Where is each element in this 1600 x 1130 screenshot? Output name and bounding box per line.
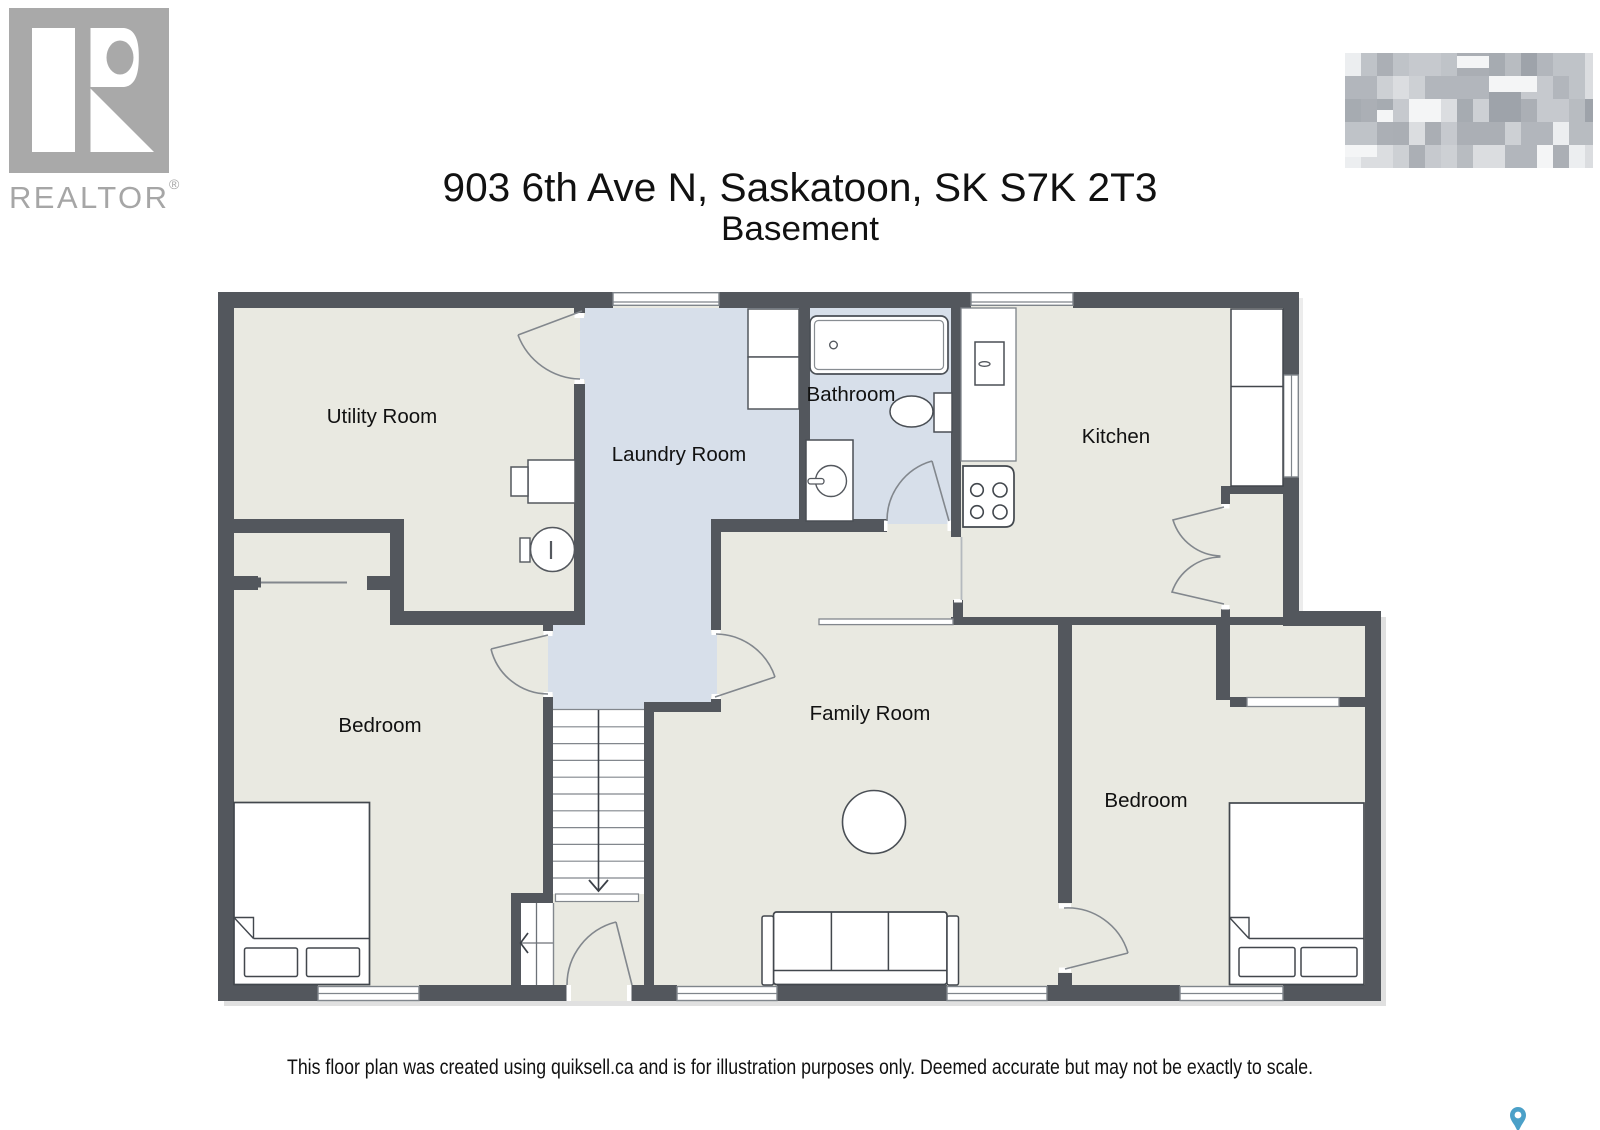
svg-text:Laundry Room: Laundry Room [612, 443, 746, 466]
svg-text:This floor plan was created us: This floor plan was created using quikse… [287, 1056, 1313, 1079]
svg-text:Family Room: Family Room [810, 702, 931, 725]
svg-text:Bathroom: Bathroom [807, 383, 896, 406]
svg-text:Bedroom: Bedroom [1104, 789, 1187, 812]
svg-text:Kitchen: Kitchen [1082, 425, 1150, 448]
svg-text:®: ® [169, 176, 180, 192]
svg-text:Bedroom: Bedroom [338, 714, 421, 737]
svg-text:REALTOR: REALTOR [9, 180, 169, 215]
svg-text:903 6th Ave N, Saskatoon, SK S: 903 6th Ave N, Saskatoon, SK S7K 2T3 [443, 166, 1158, 210]
svg-text:Basement: Basement [721, 210, 880, 248]
svg-text:Utility Room: Utility Room [327, 405, 438, 428]
